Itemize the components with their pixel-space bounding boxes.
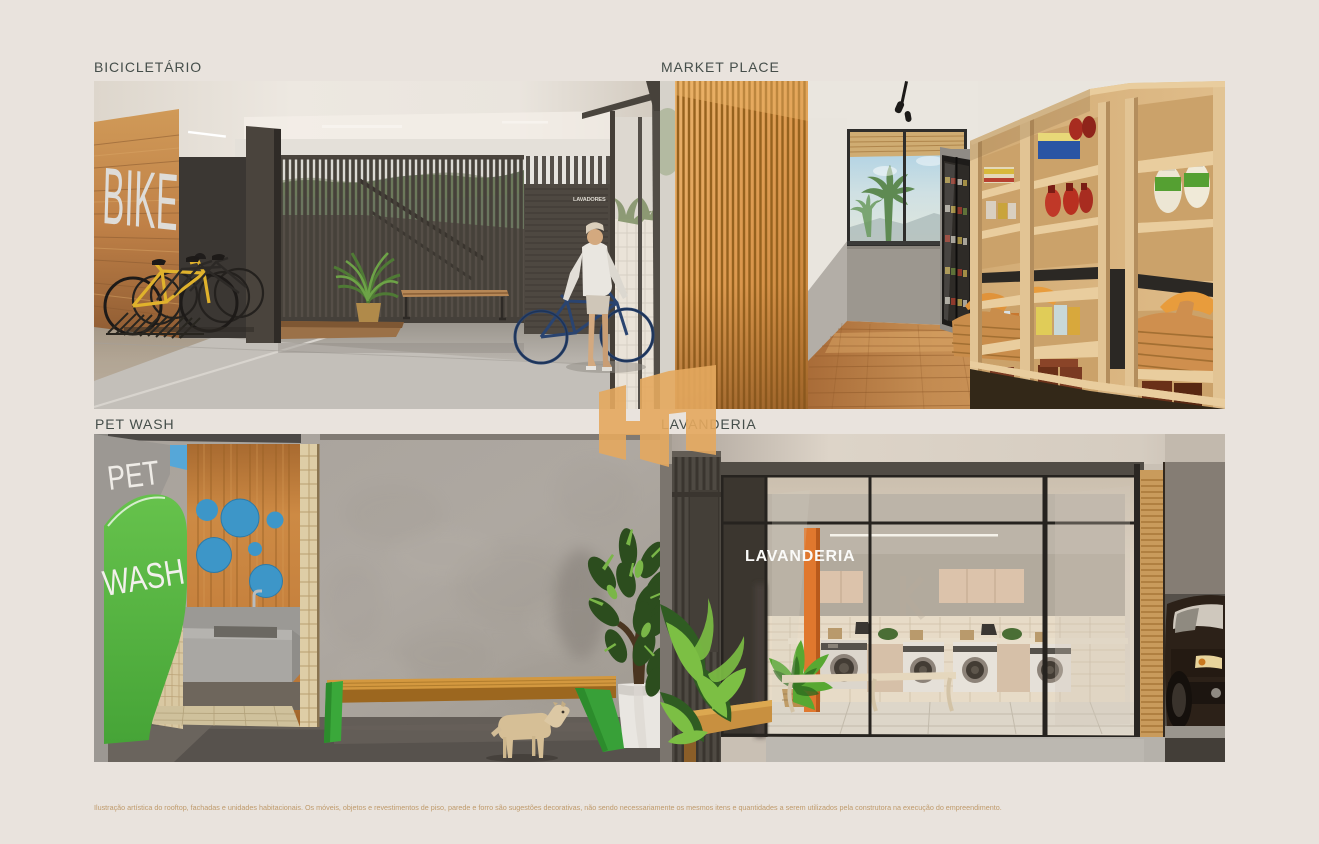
svg-text:LAVADORES: LAVADORES — [573, 197, 606, 203]
svg-text:BIKE: BIKE — [101, 150, 179, 248]
svg-text:LAVANDERIA: LAVANDERIA — [745, 548, 856, 565]
svg-text:PET: PET — [105, 454, 161, 498]
